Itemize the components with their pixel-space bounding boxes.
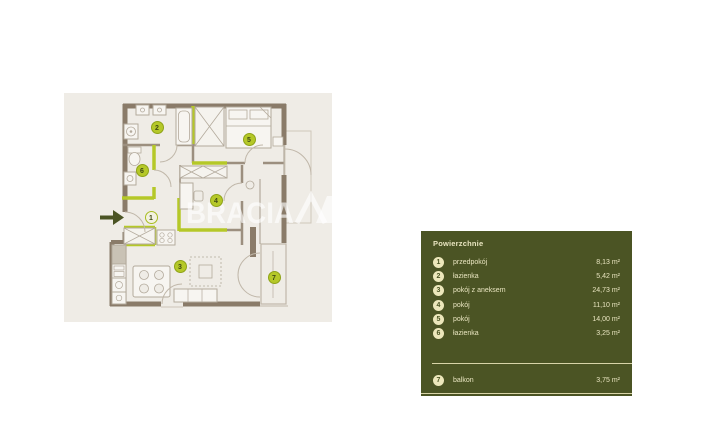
legend-rows: 1 przedpokój 8,13 m² 2 łazienka 5,42 m² … bbox=[433, 255, 620, 341]
room-number-badge: 6 bbox=[433, 328, 444, 339]
legend-row: 2 łazienka 5,42 m² bbox=[433, 269, 620, 283]
room-area: 14,00 m² bbox=[592, 316, 620, 323]
room-name: łazienka bbox=[453, 273, 479, 280]
floor-plan: BRACIA 1 2 3 4 5 6 7 bbox=[64, 93, 332, 322]
room-number-badge: 4 bbox=[433, 300, 444, 311]
room-area: 3,25 m² bbox=[596, 330, 620, 337]
room-number-badge: 7 bbox=[433, 375, 444, 386]
room-area: 5,42 m² bbox=[596, 273, 620, 280]
legend-row: 1 przedpokój 8,13 m² bbox=[433, 255, 620, 269]
legend-row: 3 pokój z aneksem 24,73 m² bbox=[433, 284, 620, 298]
legend-divider bbox=[432, 363, 632, 364]
legend-row: 6 łazienka 3,25 m² bbox=[433, 326, 620, 340]
room-number-badge: 5 bbox=[433, 314, 444, 325]
room-number-badge: 1 bbox=[433, 257, 444, 268]
room-marker-3: 3 bbox=[174, 260, 187, 273]
room-area: 11,10 m² bbox=[593, 302, 620, 309]
room-marker-1: 1 bbox=[145, 211, 158, 224]
legend-row: 4 pokój 11,10 m² bbox=[433, 298, 620, 312]
room-name: łazienka bbox=[453, 330, 479, 337]
room-name: pokój bbox=[453, 302, 470, 309]
room-name: pokój bbox=[453, 316, 470, 323]
legend-row: 5 pokój 14,00 m² bbox=[433, 312, 620, 326]
room-name: przedpokój bbox=[453, 259, 487, 266]
legend-row: 7 balkon 3,75 m² bbox=[433, 374, 620, 388]
room-number-badge: 2 bbox=[433, 271, 444, 282]
legend-title: Powierzchnie bbox=[433, 239, 620, 248]
room-name: balkon bbox=[453, 377, 474, 384]
room-area: 3,75 m² bbox=[596, 377, 620, 384]
room-area: 8,13 m² bbox=[596, 259, 620, 266]
room-marker-5: 5 bbox=[243, 133, 256, 146]
legend-bottom-line bbox=[421, 393, 632, 394]
watermark-text: BRACIA bbox=[186, 197, 294, 230]
room-number-badge: 3 bbox=[433, 285, 444, 296]
room-marker-7: 7 bbox=[268, 271, 281, 284]
room-name: pokój z aneksem bbox=[453, 287, 506, 294]
room-marker-6: 6 bbox=[136, 164, 149, 177]
page: { "floor_plan": { "watermark_text": "BRA… bbox=[0, 0, 710, 424]
room-marker-2: 2 bbox=[151, 121, 164, 134]
floor-plan-drawing: BRACIA bbox=[64, 93, 332, 322]
room-marker-4: 4 bbox=[210, 194, 223, 207]
areas-legend-panel: Powierzchnie 1 przedpokój 8,13 m² 2 łazi… bbox=[421, 231, 632, 396]
room-area: 24,73 m² bbox=[592, 287, 620, 294]
